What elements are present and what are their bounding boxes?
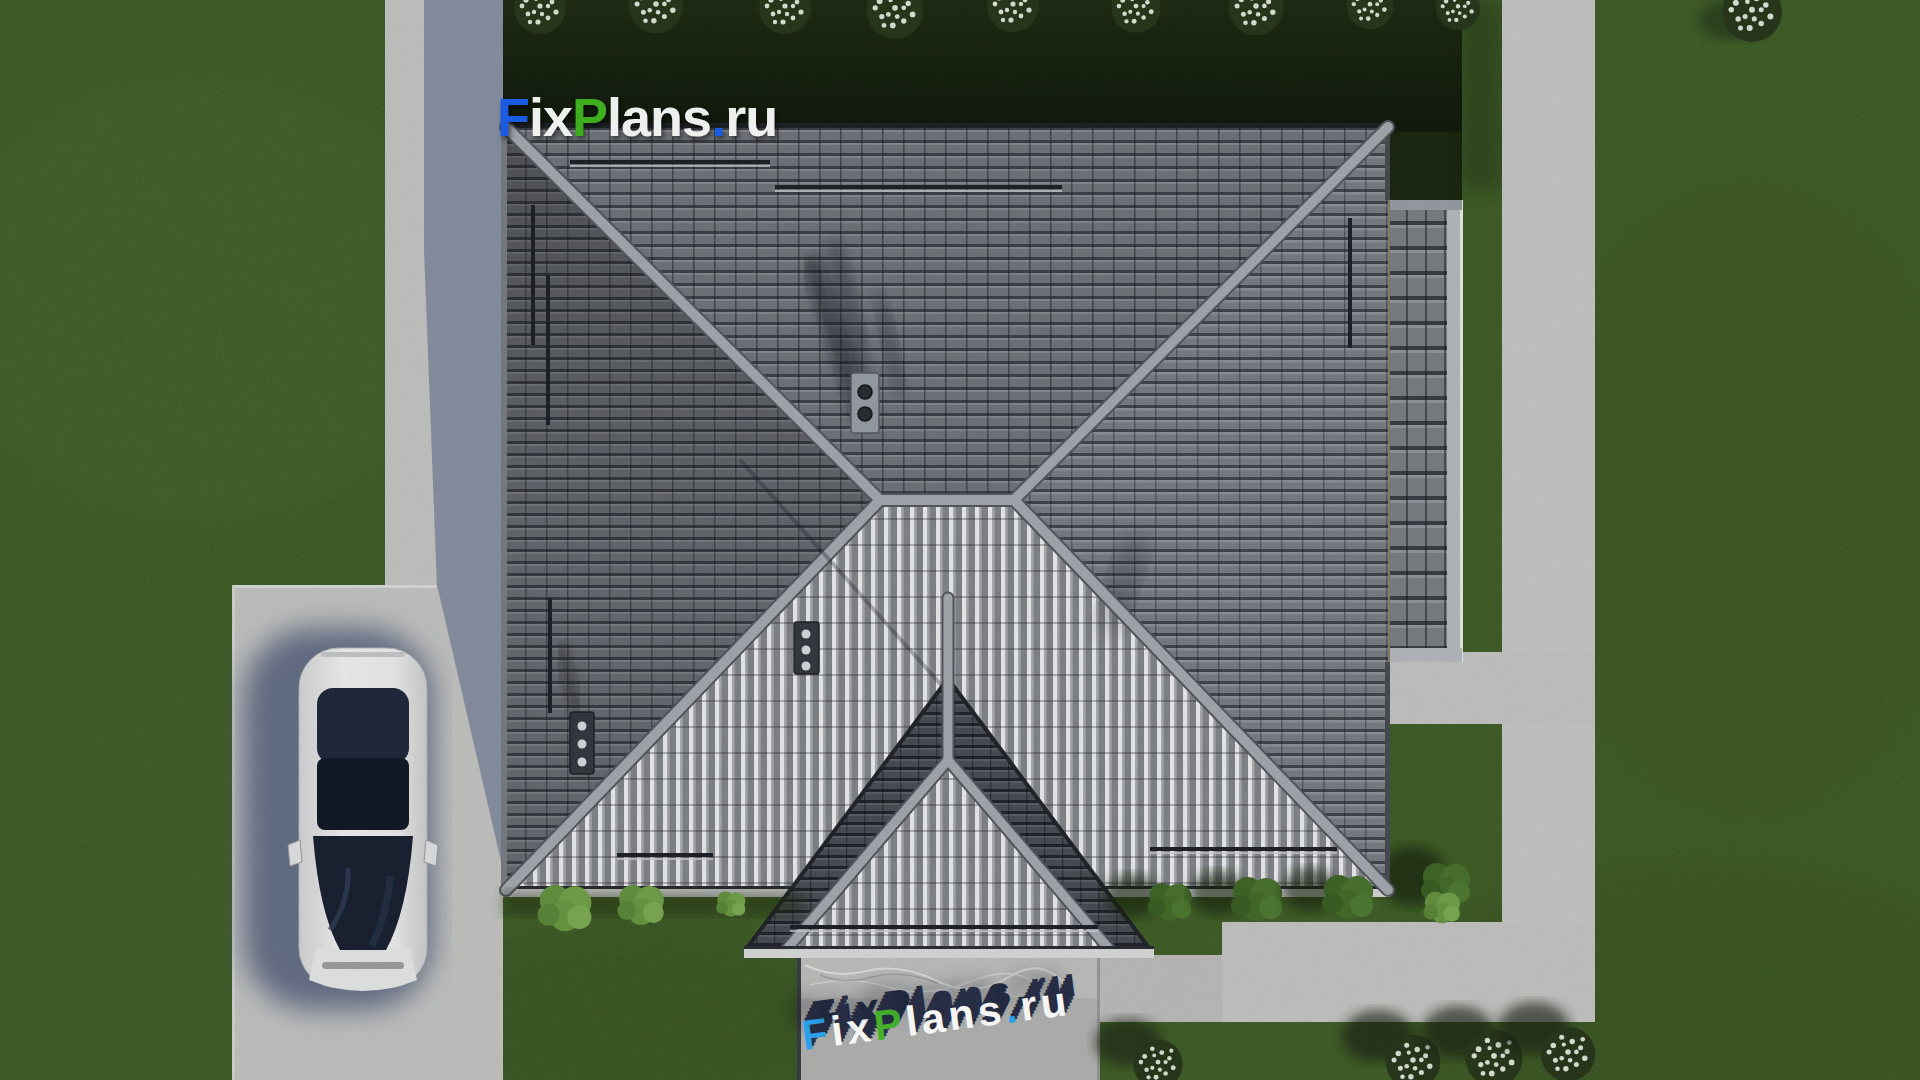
ground-part-ru: ru <box>1017 977 1073 1030</box>
film-grain-overlay <box>0 0 1920 1080</box>
scene-graphics <box>0 0 1920 1080</box>
logo-part-f: F <box>497 87 529 147</box>
logo-part-dot: . <box>711 87 725 147</box>
fixplans-logo-watermark: FixPlans.ru <box>497 86 777 148</box>
logo-part-lans: lans <box>607 87 711 147</box>
ground-part-ix: ix <box>828 1003 877 1055</box>
aerial-house-plan-render: FixPlans.ru FixPlans.ru <box>0 0 1920 1080</box>
logo-part-p: P <box>572 87 607 147</box>
logo-part-ru: ru <box>725 87 777 147</box>
logo-part-ix: ix <box>529 87 572 147</box>
